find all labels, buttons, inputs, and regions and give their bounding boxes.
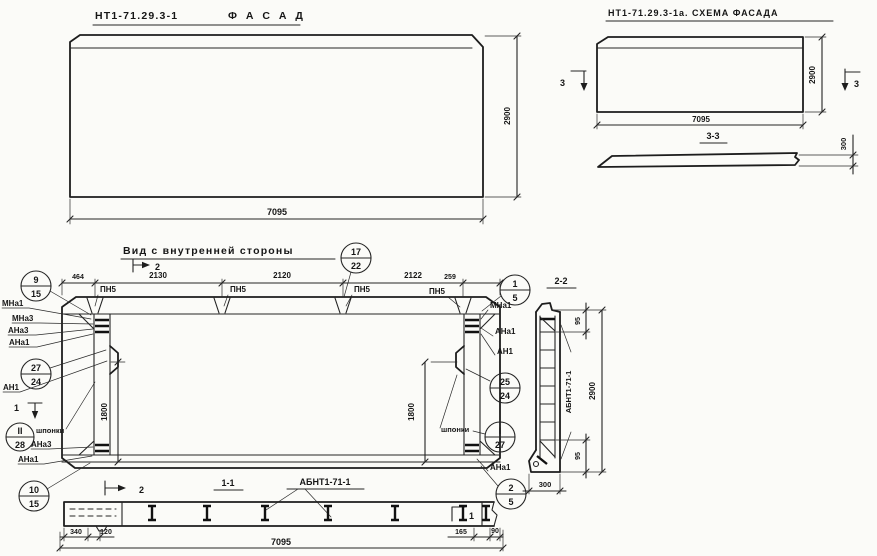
label-ana1-right: АНа1	[495, 327, 516, 336]
svg-text:7095: 7095	[267, 207, 287, 217]
svg-text:1: 1	[14, 403, 19, 413]
strip-anchor-dashes	[70, 509, 116, 516]
label-ana1-left-2: АНа1	[18, 455, 39, 464]
label-an1-right: АН1	[497, 347, 514, 356]
scheme-slab-dim: 300	[799, 135, 858, 174]
section-1-1-label: 1-1	[221, 478, 234, 488]
callout-27-24: 27 24	[21, 350, 106, 389]
svg-text:ПН5: ПН5	[100, 285, 117, 294]
svg-text:120: 120	[100, 529, 112, 536]
label-ana1-right-2: АНа1	[490, 463, 511, 472]
label-an1-left: АН1	[3, 383, 20, 392]
panel-outline	[62, 297, 500, 468]
svg-text:10: 10	[29, 485, 39, 495]
svg-text:7095: 7095	[271, 537, 291, 547]
scheme-slab-profile	[598, 153, 799, 167]
label-shponki-left: шпонки	[36, 426, 65, 435]
sec22-dim-300: 300	[523, 474, 566, 494]
svg-text:95: 95	[575, 452, 582, 460]
label-mna1-left: МНа1	[2, 299, 24, 308]
label-ana3-left: АНа3	[8, 326, 29, 335]
svg-text:ПН5: ПН5	[230, 285, 247, 294]
panel-edge-lines	[62, 314, 500, 462]
facade-dim-height: 2900	[485, 33, 521, 200]
section-3-mark-left: 3	[560, 71, 588, 91]
facade-title: Ф А С А Д	[228, 10, 306, 22]
svg-text:27: 27	[31, 363, 41, 373]
sec22-dim-bottom95: 95	[556, 434, 606, 478]
section-3-3-label: 3-3	[706, 131, 719, 141]
svg-text:2: 2	[508, 483, 513, 493]
svg-text:95: 95	[575, 317, 582, 325]
scheme-dim-width: 7095	[594, 114, 806, 129]
sec22-top	[536, 303, 560, 312]
svg-text:2900: 2900	[503, 107, 512, 125]
svg-text:2120: 2120	[273, 271, 291, 280]
strip-break-line	[492, 502, 497, 526]
strip-dims: 340 120 165 90 7095	[57, 528, 506, 551]
svg-text:2: 2	[139, 485, 144, 495]
label-mna3-left: МНа3	[12, 314, 34, 323]
pn5-labels: ПН5 ПН5 ПН5 ПН5	[95, 285, 460, 307]
svg-text:I: I	[499, 426, 502, 436]
svg-text:165: 165	[455, 529, 467, 536]
strip-end-blocks	[122, 502, 482, 526]
callout-II-28: II 28	[6, 423, 34, 451]
svg-text:3: 3	[560, 78, 565, 88]
callout-I-27: I 27	[473, 422, 515, 452]
label-mna1-right: МНа1	[490, 301, 512, 310]
section-2-2-label: 2-2	[554, 276, 567, 286]
drawing-canvas: НТ1-71.29.3-1 Ф А С А Д 2900 7095 НТ1-71…	[0, 0, 877, 556]
sec22-dim-2900: 2900	[588, 307, 605, 475]
svg-text:3: 3	[854, 79, 859, 89]
section-3-mark-right: 3	[842, 69, 861, 91]
facade-outline	[70, 35, 483, 197]
label-ana1-left: АНа1	[9, 338, 30, 347]
svg-text:II: II	[17, 426, 22, 436]
facade-view: НТ1-71.29.3-1 Ф А С А Д 2900 7095	[67, 10, 521, 224]
svg-text:5: 5	[512, 293, 517, 303]
svg-text:17: 17	[351, 247, 361, 257]
scheme-title: НТ1-71.29.3-1а. СХЕМА ФАСАДА	[608, 8, 778, 18]
svg-text:15: 15	[31, 289, 41, 299]
section-2-mark-bottom: 2	[105, 481, 144, 495]
blueprint-sheet: НТ1-71.29.3-1 Ф А С А Д 2900 7095 НТ1-71…	[0, 0, 877, 556]
strip-outline	[64, 502, 494, 526]
svg-text:24: 24	[500, 391, 510, 401]
svg-text:28: 28	[15, 440, 25, 450]
svg-text:27: 27	[495, 440, 505, 450]
svg-text:2122: 2122	[404, 271, 422, 280]
facade-scheme-view: НТ1-71.29.3-1а. СХЕМА ФАСАДА 3 3 2900 70…	[560, 8, 860, 174]
dim-1800-left: 1800	[100, 359, 125, 465]
svg-text:25: 25	[500, 377, 510, 387]
svg-text:340: 340	[70, 529, 82, 536]
svg-text:5: 5	[508, 497, 513, 507]
sec22-dim-top95: 95	[553, 303, 606, 339]
label-shponki-right: шпонки	[441, 425, 470, 434]
inner-title: Вид с внутренней стороны	[123, 245, 294, 257]
sec22-reinforcement	[537, 316, 555, 464]
svg-text:7095: 7095	[692, 115, 710, 124]
svg-text:9: 9	[33, 275, 38, 285]
svg-text:ПН5: ПН5	[429, 287, 446, 296]
panel-top-notches	[87, 298, 471, 313]
svg-text:1: 1	[512, 279, 517, 289]
svg-text:ПН5: ПН5	[354, 285, 371, 294]
svg-text:1800: 1800	[407, 403, 416, 421]
svg-text:464: 464	[72, 274, 84, 281]
section-1-mark-left: 1	[14, 403, 42, 419]
facade-code: НТ1-71.29.3-1	[95, 10, 178, 22]
scheme-dim-height: 2900	[805, 34, 826, 115]
strip-clips	[148, 506, 490, 520]
svg-text:2900: 2900	[808, 66, 817, 84]
svg-text:90: 90	[491, 528, 499, 535]
section-2-2: 2-2 АБНТ1-71-1 95 95 2900	[523, 276, 606, 494]
part-label-abnt: АБНТ1-71-1	[300, 477, 351, 487]
dim-1800-right: 1800	[407, 359, 457, 465]
svg-text:1800: 1800	[100, 403, 109, 421]
svg-text:24: 24	[31, 377, 41, 387]
label-ana3-left-2: АНа3	[31, 440, 52, 449]
svg-text:2130: 2130	[149, 271, 167, 280]
svg-text:1: 1	[469, 511, 474, 521]
sec22-loop	[534, 462, 539, 467]
svg-text:15: 15	[29, 499, 39, 509]
inner-view: Вид с внутренней стороны 2 464 2130 2120…	[2, 243, 530, 521]
panel-left-rib	[79, 314, 118, 455]
svg-text:2900: 2900	[588, 382, 597, 400]
sec22-part-label: АБНТ1-71-1	[564, 371, 573, 413]
callout-25-24: 25 24	[466, 369, 520, 403]
svg-text:22: 22	[351, 261, 361, 271]
svg-text:259: 259	[444, 274, 456, 281]
svg-text:300: 300	[539, 480, 552, 489]
svg-text:300: 300	[839, 138, 848, 151]
callout-10-15: 10 15	[19, 463, 90, 511]
facade-dim-width: 7095	[67, 199, 486, 224]
